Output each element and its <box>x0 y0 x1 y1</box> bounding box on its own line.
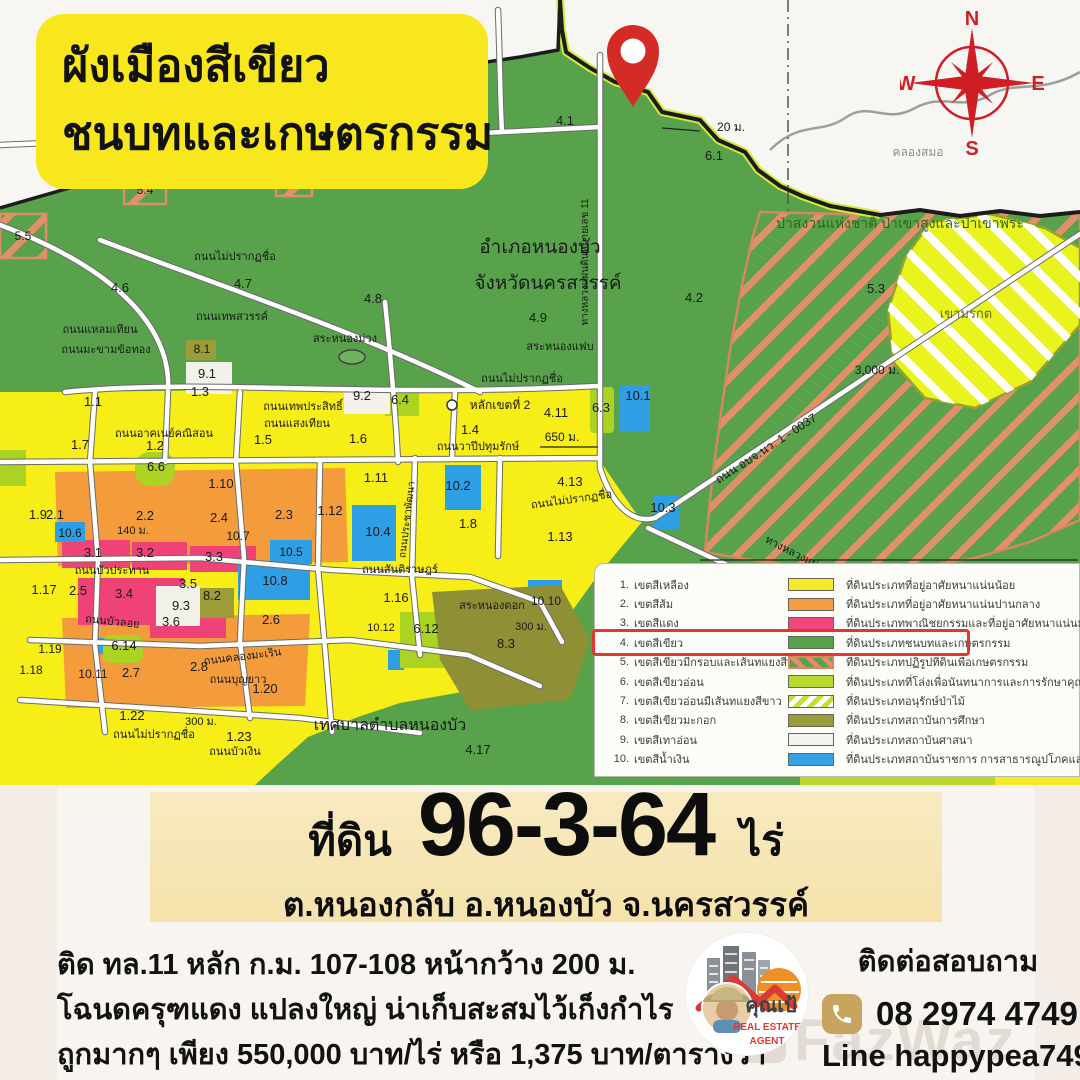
map-label: 6.4 <box>391 392 409 407</box>
map-label: ถนนมะขามข้อทอง <box>61 344 150 356</box>
map-label: 1.19 <box>38 642 62 656</box>
map-label: 9.2 <box>353 388 371 403</box>
logo-agent-text: AGENT <box>750 1036 785 1047</box>
compass-n: N <box>965 8 979 30</box>
legend-item: 5. เขตสีเขียวมีกรอบและเส้นทแยงสีน้ำตาล ท… <box>607 653 1071 672</box>
map-label: ทางหลวงแผ่นดินหมายเลข 11 <box>580 198 591 325</box>
map-label: 4.11 <box>544 405 568 420</box>
description-line1: ติด ทล.11 หลัก ก.ม. 107-108 หน้ากว้าง 20… <box>57 943 766 988</box>
legend-item: 9. เขตสีเทาอ่อน ที่ดินประเภทสถาบันศาสนา <box>607 730 1071 749</box>
legend-item: 1. เขตสีเหลือง ที่ดินประเภทที่อยู่อาศัยห… <box>607 575 1071 594</box>
legend-item: 2. เขตสีส้ม ที่ดินประเภทที่อยู่อาศัยหนาแ… <box>607 594 1071 613</box>
legend-swatch-red <box>788 617 834 630</box>
legend-swatch-green-hatch <box>788 656 834 669</box>
map-label: 5.3 <box>867 281 885 296</box>
map-label: 20 ม. <box>717 120 745 134</box>
description-line3: ถูกมากๆ เพียง 550,000 บาท/ไร่ หรือ 1,375… <box>57 1033 766 1078</box>
map-label: 2.3 <box>275 507 293 522</box>
land-size-card: ที่ดิน 96-3-64 ไร่ ต.หนองกลับ อ.หนองบัว … <box>150 792 942 922</box>
map-label: 10.5 <box>279 545 303 559</box>
compass-s: S <box>965 138 978 158</box>
map-label: 10.2 <box>445 478 470 493</box>
map-label: 1.11 <box>364 470 388 485</box>
map-label: เขามรกต <box>940 306 993 321</box>
title-line2: ชนบทและเกษตรกรรม <box>62 100 468 168</box>
map-label: 4.8 <box>364 291 382 306</box>
map-label: 4.6 <box>111 280 129 295</box>
map-label: 10.6 <box>58 526 82 540</box>
map-label: 2.6 <box>262 612 280 627</box>
legend-item: 7. เขตสีเขียวอ่อนมีเส้นทแยงสีขาว ที่ดินป… <box>607 691 1071 710</box>
map-label: 1.20 <box>252 681 277 696</box>
map-label: 1.23 <box>226 729 251 744</box>
map-label: 10.10 <box>531 594 561 608</box>
map-label: ถนนวาปีปทุมรักษ์ <box>437 440 520 453</box>
map-label: 1.12 <box>317 503 342 518</box>
map-label: 1.8 <box>459 516 477 531</box>
property-description: ติด ทล.11 หลัก ก.ม. 107-108 หน้ากว้าง 20… <box>57 943 766 1078</box>
map-label: 1.16 <box>383 590 408 605</box>
land-unit: ไร่ <box>740 808 784 874</box>
map-label: 2.7 <box>122 665 140 680</box>
map-label: 1.2 <box>146 438 164 453</box>
map-label: หลักเขตที่ 2 <box>470 396 531 412</box>
map-label: 4.17 <box>465 742 490 757</box>
map-label: 1.3 <box>191 384 209 399</box>
map-label: ถนนบัวประทาน <box>75 565 150 577</box>
real-estate-flyer: 4.120 ม.6.1คลองสมอ5.45.55.24.64.74.8ถนนไ… <box>0 0 1080 1080</box>
legend-swatch-blue <box>788 753 834 766</box>
map-label: 9.1 <box>198 366 216 381</box>
map-label: 10.3 <box>650 500 675 515</box>
legend-swatch-olive <box>788 714 834 727</box>
map-label: 10.11 <box>78 667 107 681</box>
pond-nong-muang <box>339 350 365 364</box>
phone-icon <box>822 994 862 1034</box>
legend-item: 6. เขตสีเขียวอ่อน ที่ดินประเภทที่โล่งเพื… <box>607 672 1071 691</box>
contact-heading: ติดต่อสอบถาม <box>822 938 1074 984</box>
map-label: จังหวัดนครสวรรค์ <box>474 272 621 294</box>
map-label: 6.12 <box>413 621 438 636</box>
contact-phone-row[interactable]: 08 2974 4749 <box>822 994 1074 1034</box>
map-label: ถนนแหลมเทียน <box>62 323 137 336</box>
map-label: 3.4 <box>115 586 133 601</box>
map-label: 1.4 <box>461 422 479 437</box>
legend-swatch-green <box>788 636 834 649</box>
map-label: 1.9 <box>29 507 47 522</box>
map-label: ถนนบัวเงิน <box>209 746 261 758</box>
logo-realestate-text: REAL ESTATE <box>733 1022 801 1033</box>
map-label: เทศบาลตำบลหนองบัว <box>314 717 467 734</box>
map-label: 8.1 <box>194 342 211 356</box>
map-label: 1.13 <box>547 529 572 544</box>
map-label: สระหนองดอก <box>459 600 525 612</box>
map-label: 2.8 <box>190 659 208 674</box>
map-label: 2.2 <box>136 508 154 523</box>
map-label: 9.3 <box>172 598 190 613</box>
map-label: ถนนแสงเทียน <box>264 417 330 430</box>
map-label: 1.22 <box>119 708 144 723</box>
logo-agent-name: คุณเป้ <box>745 994 796 1018</box>
land-label: ที่ดิน <box>308 808 392 874</box>
info-section: FazWaz ที่ดิน 96-3-64 ไร่ ต.หนองกลับ อ.ห… <box>0 785 1080 1080</box>
map-label: 10.7 <box>226 529 250 543</box>
map-label: 4.2 <box>685 290 703 305</box>
map-label: ถนนเทพสวรรค์ <box>196 310 268 323</box>
map-label: สระหนองแฟบ <box>526 341 593 353</box>
legend-swatch-yellow <box>788 578 834 591</box>
legend-swatch-lightgreen <box>788 675 834 688</box>
title-banner: ผังเมืองสีเขียว ชนบทและเกษตรกรรม <box>36 14 488 189</box>
compass-e: E <box>1031 73 1044 95</box>
map-label: 1.18 <box>19 663 43 677</box>
map-label: 1.17 <box>31 582 56 597</box>
map-label: 1.7 <box>71 437 89 452</box>
map-label: 2.4 <box>210 510 228 525</box>
map-label: 10.4 <box>365 524 390 539</box>
map-label: 300 ม. <box>185 716 217 728</box>
map-label: 3.3 <box>205 549 223 564</box>
title-line1: ผังเมืองสีเขียว <box>62 32 468 100</box>
legend-swatch-orange <box>788 598 834 611</box>
map-label: 5.5 <box>15 229 32 243</box>
description-line2: โฉนดครุฑแดง แปลงใหญ่ น่าเก็บสะสมไว้เก็งก… <box>57 988 766 1033</box>
map-label: 8.2 <box>203 588 221 603</box>
map-label: 3.6 <box>162 614 180 629</box>
legend-item: 10. เขตสีน้ำเงิน ที่ดินประเภทสถาบันราชกา… <box>607 750 1071 769</box>
compass-rose-icon: N S E W <box>900 8 1045 158</box>
legend-swatch-gray <box>788 733 834 746</box>
map-label: 6.6 <box>147 459 165 474</box>
map-label: 3.2 <box>136 545 154 560</box>
line-id[interactable]: Line happypea749 <box>822 1038 1074 1074</box>
map-label: ถนนไม่ปรากฏชื่อ <box>481 370 563 385</box>
map-label: ถนนสันติราษฎร์ <box>362 563 438 576</box>
map-label: ถนนอาคเนย์คณิสอน <box>115 427 213 440</box>
map-label: 650 ม. <box>545 430 580 444</box>
map-label: 6.3 <box>592 400 610 415</box>
map-label: 8.3 <box>497 636 515 651</box>
map-label: 3.1 <box>84 545 102 560</box>
map-label: 1.1 <box>84 394 102 409</box>
map-label: สระหนองม่วง <box>313 333 377 345</box>
map-label: ถนนไม่ปรากฏชื่อ <box>194 248 276 263</box>
map-label: 2.1 <box>46 507 64 522</box>
map-label: 10.1 <box>625 388 650 403</box>
map-label: 4.7 <box>234 276 252 291</box>
map-legend: 1. เขตสีเหลือง ที่ดินประเภทที่อยู่อาศัยห… <box>594 563 1080 777</box>
compass-w: W <box>900 73 916 95</box>
map-label: ถนนไม่ปรากฏชื่อ <box>113 726 195 741</box>
legend-swatch-lightgreen-hatch <box>788 695 834 708</box>
boundary-marker-2 <box>447 400 457 410</box>
contact-block: ติดต่อสอบถาม 08 2974 4749 Line happypea7… <box>822 938 1074 1074</box>
map-label: 10.12 <box>367 622 395 634</box>
land-area-value: 96-3-64 <box>418 783 714 869</box>
map-label: 1.5 <box>254 432 272 447</box>
land-location: ต.หนองกลับ อ.หนองบัว จ.นครสวรรค์ <box>283 878 809 931</box>
map-label: 4.13 <box>557 474 582 489</box>
map-label: 6.14 <box>111 638 136 653</box>
map-label: ถนนเทพประสิทธิ์ <box>263 398 344 413</box>
map-label: 4.1 <box>556 113 574 128</box>
map-label: 4.9 <box>529 310 547 325</box>
legend-item: 8. เขตสีเขียวมะกอก ที่ดินประเภทสถาบันการ… <box>607 711 1071 730</box>
map-label: ป่าสงวนแห่งชาติ ป่าเขาสูงและป่าเขาพระ <box>776 215 1024 232</box>
legend-item-highlighted: 4. เขตสีเขียว ที่ดินประเภทชนบทและเกษตรกร… <box>607 633 1071 652</box>
map-label: 3.5 <box>179 576 197 591</box>
map-label: 2.5 <box>69 583 87 598</box>
legend-item: 3. เขตสีแดง ที่ดินประเภทพาณิชยกรรมและที่… <box>607 614 1071 633</box>
map-label: 3,000 ม. <box>855 363 900 377</box>
map-label: 140 ม. <box>117 525 149 537</box>
agent-logo: คุณเป้ REAL ESTATE AGENT <box>686 933 808 1055</box>
map-label: 300 ม. <box>515 621 547 633</box>
map-label: 10.8 <box>262 573 287 588</box>
map-label: 1.6 <box>349 431 367 446</box>
phone-number: 08 2974 4749 <box>876 995 1078 1033</box>
map-label: 6.1 <box>705 148 723 163</box>
map-label: 1.10 <box>208 476 233 491</box>
